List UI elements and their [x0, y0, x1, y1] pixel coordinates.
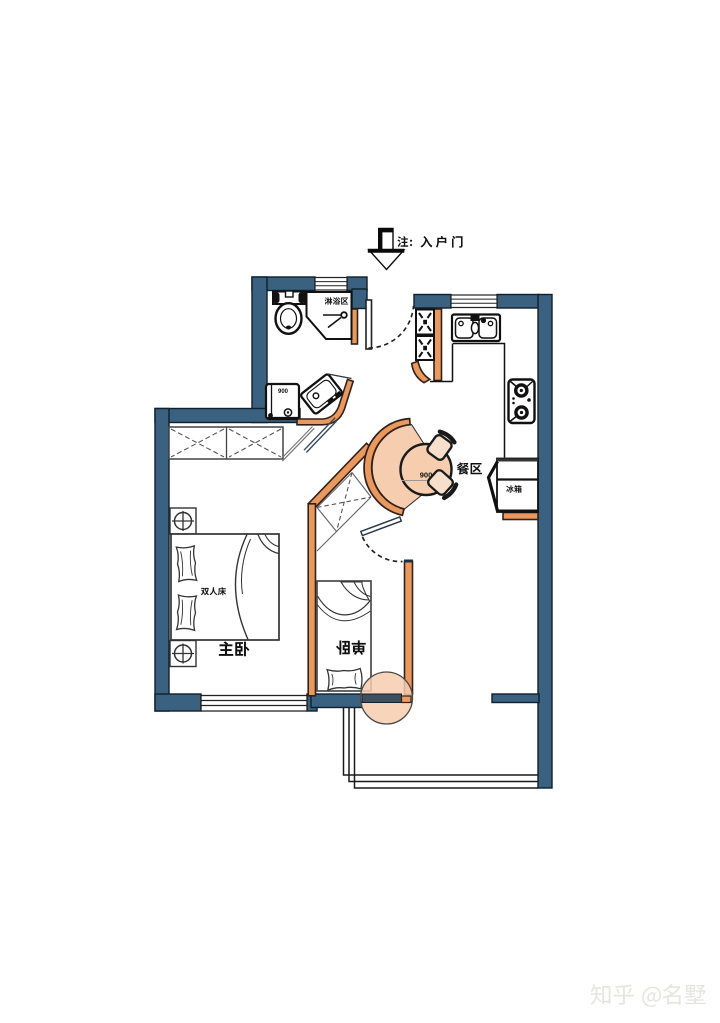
svg-text:900: 900: [278, 389, 289, 395]
